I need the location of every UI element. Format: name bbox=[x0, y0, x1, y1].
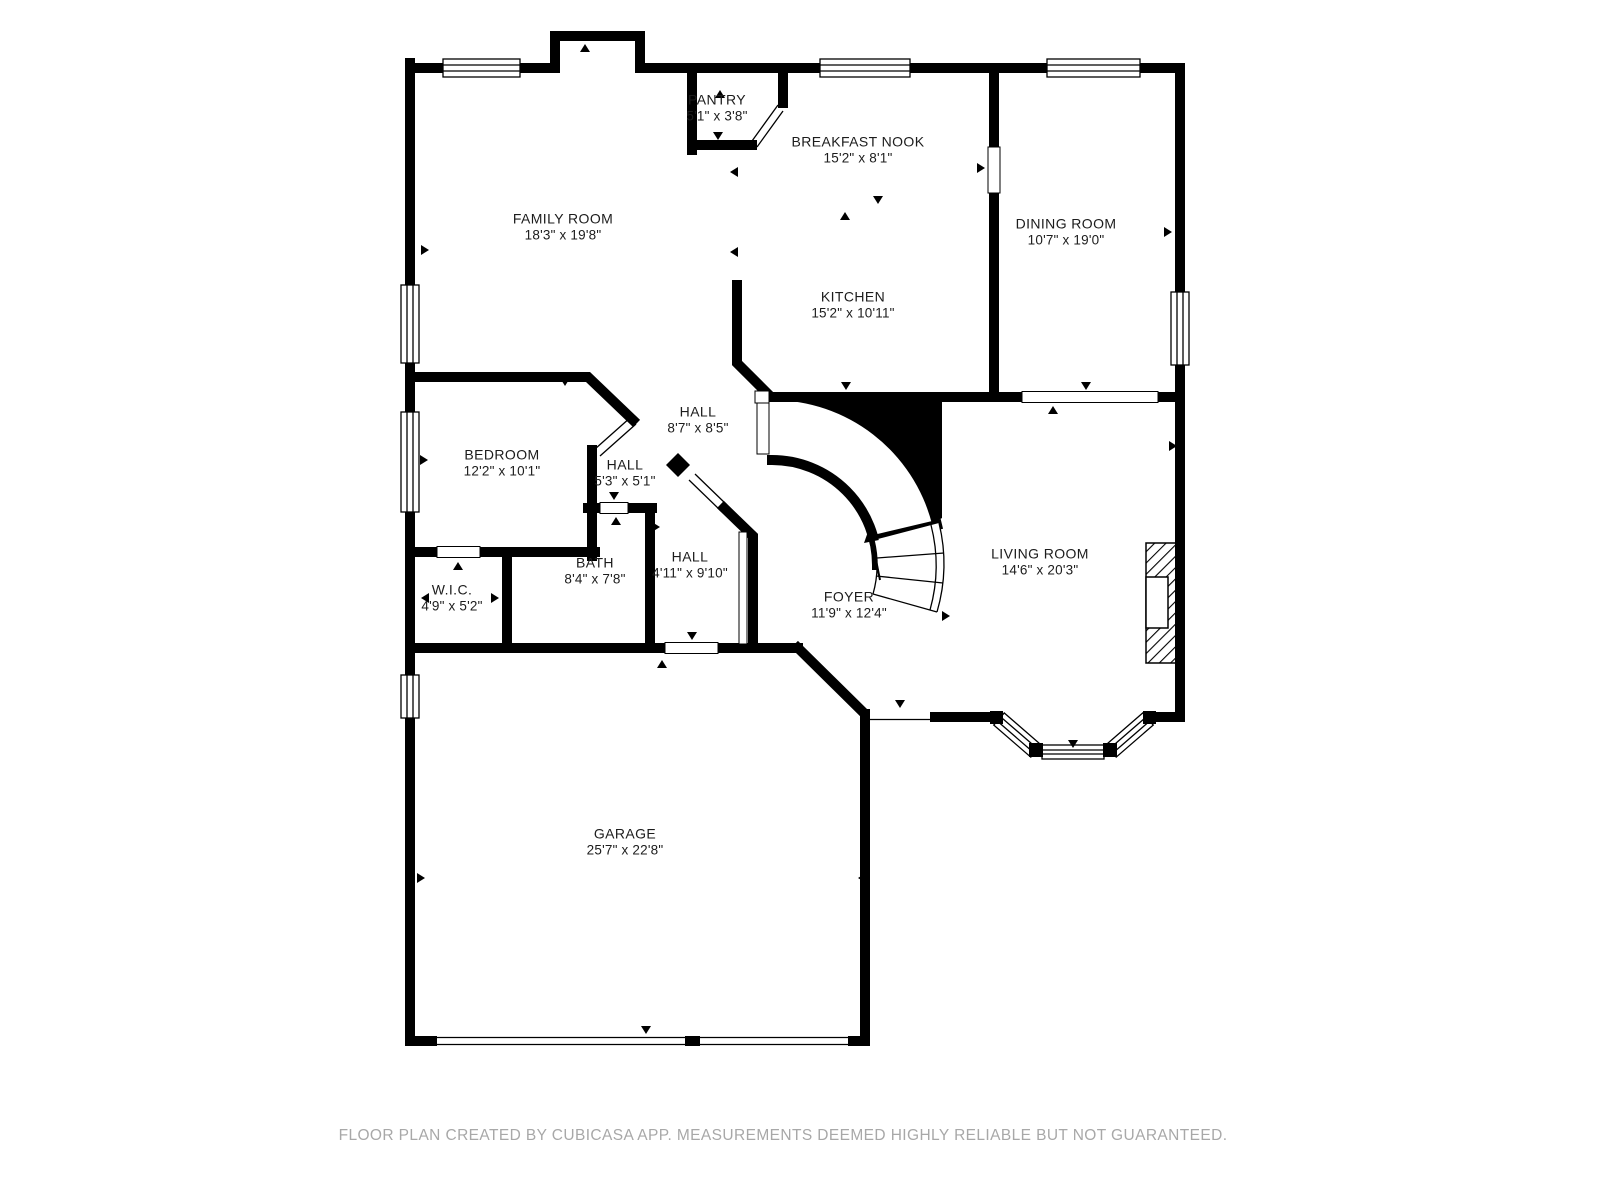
room-label-dining-room: DINING ROOM 10'7" x 19'0" bbox=[1016, 217, 1117, 248]
window bbox=[401, 412, 419, 512]
window bbox=[1171, 292, 1189, 365]
room-label-foyer: FOYER 11'9" x 12'4" bbox=[811, 590, 887, 621]
room-dimensions: 15'2" x 10'11" bbox=[811, 305, 894, 321]
room-label-kitchen: KITCHEN 15'2" x 10'11" bbox=[811, 290, 894, 321]
room-label-bedroom: BEDROOM 12'2" x 10'1" bbox=[464, 448, 541, 479]
room-name: BEDROOM bbox=[464, 448, 541, 464]
cased-opening bbox=[1022, 392, 1158, 403]
room-name: LIVING ROOM bbox=[991, 547, 1089, 563]
room-label-hall-small: HALL 5'3" x 5'1" bbox=[594, 458, 655, 489]
room-dimensions: 4'11" x 9'10" bbox=[652, 565, 728, 581]
garage-door-interior bbox=[665, 643, 718, 654]
room-dimensions: 14'6" x 20'3" bbox=[991, 562, 1089, 578]
room-dimensions: 8'4" x 7'8" bbox=[564, 571, 625, 587]
room-name: HALL bbox=[652, 550, 728, 566]
room-name: FOYER bbox=[811, 590, 887, 606]
front-door-gap bbox=[870, 711, 930, 723]
room-label-hall-main: HALL 8'7" x 8'5" bbox=[667, 405, 728, 436]
room-name: FAMILY ROOM bbox=[513, 212, 613, 228]
room-name: HALL bbox=[667, 405, 728, 421]
garage-door-1 bbox=[437, 1035, 685, 1047]
room-name: W.I.C. bbox=[421, 583, 482, 599]
room-label-living-room: LIVING ROOM 14'6" x 20'3" bbox=[991, 547, 1089, 578]
room-dimensions: 5'1" x 3'8" bbox=[686, 108, 747, 124]
room-dimensions: 15'2" x 8'1" bbox=[792, 150, 925, 166]
room-label-bath: BATH 8'4" x 7'8" bbox=[564, 556, 625, 587]
stair-doorway-jamb bbox=[757, 402, 769, 454]
room-label-hall-south: HALL 4'11" x 9'10" bbox=[652, 550, 728, 581]
footer-disclaimer: FLOOR PLAN CREATED BY CUBICASA APP. MEAS… bbox=[339, 1127, 1228, 1145]
window bbox=[401, 675, 419, 718]
room-name: GARAGE bbox=[587, 827, 664, 843]
room-name: PANTRY bbox=[686, 93, 747, 109]
bay-window bbox=[990, 711, 1156, 759]
room-dimensions: 18'3" x 19'8" bbox=[513, 227, 613, 243]
hall-foyer-frame bbox=[739, 532, 747, 644]
room-name: DINING ROOM bbox=[1016, 217, 1117, 233]
room-name: HALL bbox=[594, 458, 655, 474]
room-label-wic: W.I.C. 4'9" x 5'2" bbox=[421, 583, 482, 614]
floor-plan-page: PANTRY 5'1" x 3'8" BREAKFAST NOOK 15'2" … bbox=[0, 0, 1600, 1200]
room-label-pantry: PANTRY 5'1" x 3'8" bbox=[686, 93, 747, 124]
bath-door bbox=[600, 503, 628, 514]
window bbox=[1047, 59, 1140, 77]
fireplace bbox=[1146, 543, 1177, 663]
room-name: BREAKFAST NOOK bbox=[792, 135, 925, 151]
wic-door bbox=[437, 547, 480, 558]
window bbox=[401, 285, 419, 363]
garage-door-2 bbox=[700, 1035, 848, 1047]
room-dimensions: 10'7" x 19'0" bbox=[1016, 232, 1117, 248]
staircase bbox=[757, 400, 944, 612]
direction-arrows bbox=[417, 44, 1177, 1034]
room-dimensions: 12'2" x 10'1" bbox=[464, 463, 541, 479]
room-dimensions: 5'3" x 5'1" bbox=[594, 473, 655, 489]
window bbox=[443, 59, 520, 77]
room-label-breakfast-nook: BREAKFAST NOOK 15'2" x 8'1" bbox=[792, 135, 925, 166]
room-name: BATH bbox=[564, 556, 625, 572]
nook-dining-opening bbox=[988, 147, 1000, 193]
floorplan-drawing bbox=[0, 0, 1600, 1200]
room-label-garage: GARAGE 25'7" x 22'8" bbox=[587, 827, 664, 858]
room-label-family-room: FAMILY ROOM 18'3" x 19'8" bbox=[513, 212, 613, 243]
room-dimensions: 11'9" x 12'4" bbox=[811, 605, 887, 621]
room-dimensions: 25'7" x 22'8" bbox=[587, 842, 664, 858]
room-dimensions: 4'9" x 5'2" bbox=[421, 598, 482, 614]
exterior-walls bbox=[410, 36, 1180, 1041]
window bbox=[820, 59, 910, 77]
room-name: KITCHEN bbox=[811, 290, 894, 306]
room-dimensions: 8'7" x 8'5" bbox=[667, 420, 728, 436]
